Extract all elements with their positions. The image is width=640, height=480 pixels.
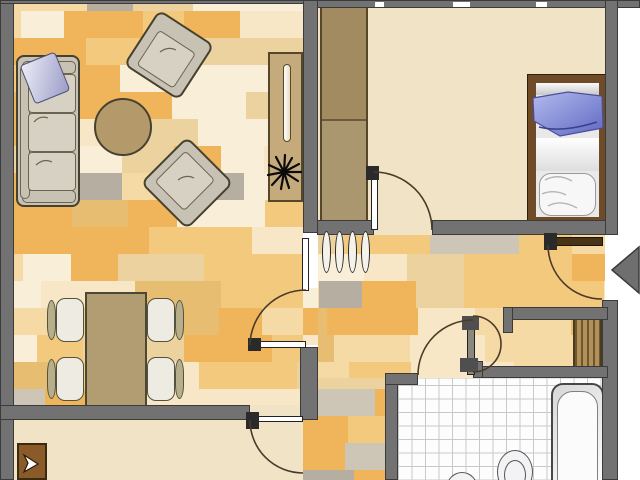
dining-chair <box>56 357 84 401</box>
floor-plan <box>0 0 640 480</box>
sink <box>445 471 481 480</box>
dining-chair <box>147 357 175 401</box>
bathtub <box>551 383 604 480</box>
dining-chair-back <box>47 300 56 340</box>
dining-chair-back <box>175 359 184 399</box>
window-mark <box>453 2 470 7</box>
sofa-armrest-bottom <box>22 190 76 203</box>
dining-chair-back <box>47 359 56 399</box>
bed-headboard <box>536 83 599 95</box>
wall-storage-top-notch <box>503 307 513 333</box>
coat-hook <box>348 231 357 273</box>
wall-storage-top <box>503 307 608 320</box>
living-door-jamb <box>248 338 261 351</box>
sideboard <box>268 52 303 202</box>
dining-chair <box>56 298 84 342</box>
sideboard-groove <box>283 64 291 142</box>
wall-living-bottom <box>0 405 250 420</box>
wall-right-bottom <box>602 300 618 480</box>
bed <box>528 75 607 225</box>
entrance-door-jamb <box>544 233 557 250</box>
toilet <box>494 449 536 480</box>
entrance-arrow-icon <box>612 247 639 293</box>
dining-chair-back <box>175 300 184 340</box>
wall-living-hall <box>300 347 318 420</box>
coat-hook <box>361 231 370 273</box>
wall-storage-bottom <box>473 366 608 378</box>
wardrobe <box>320 6 368 222</box>
window-mark <box>375 2 384 7</box>
sofa-cushion <box>28 113 76 152</box>
wall-right-top <box>605 0 618 235</box>
wall-living-bedroom <box>303 0 318 233</box>
bed-pillow <box>539 173 596 216</box>
bathroom-door-jamb-bottom <box>460 358 478 372</box>
storage-shelf <box>573 315 602 369</box>
bedroom-door-jamb <box>366 166 379 180</box>
wall-bedroom-bottom-east <box>432 220 618 235</box>
coat-hook <box>322 231 331 273</box>
dining-chair <box>147 298 175 342</box>
living-door-partition <box>302 238 309 291</box>
entry-hall-door-leaf <box>257 416 303 422</box>
bedroom-door-threshold <box>374 220 432 235</box>
coat-hook <box>335 231 344 273</box>
entry-marker <box>17 443 47 480</box>
living-door-threshold <box>303 288 318 345</box>
bed-sheet <box>536 138 599 171</box>
window-mark <box>536 2 547 7</box>
entry-hall-door-jamb <box>246 412 259 429</box>
wall-bath-left <box>385 378 398 480</box>
dining-table <box>85 292 147 407</box>
bedroom-door-leaf <box>371 178 378 230</box>
wall-top-living <box>0 0 304 4</box>
wall-bath-top-west <box>385 373 418 385</box>
sofa-cushion <box>28 152 76 191</box>
wall-top-bedroom <box>304 0 640 8</box>
coffee-table <box>94 98 152 156</box>
bathroom-door-jamb-top <box>462 316 479 330</box>
